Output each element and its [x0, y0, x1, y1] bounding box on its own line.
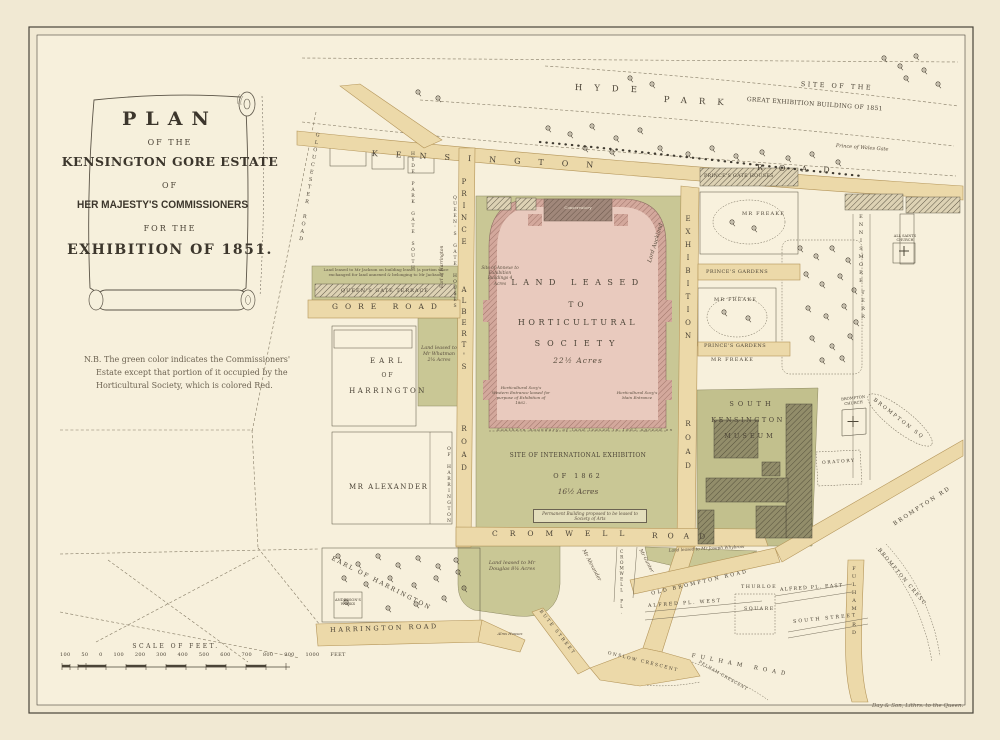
road-label-ennismore-terr: TERR. [860, 290, 865, 330]
road-label-exhibition-road: ROAD [684, 420, 691, 476]
label-of-harrington: OF HARRINGTON [446, 447, 451, 525]
alms-houses-label: Alms Houses [497, 632, 523, 637]
horticultural-label-4: SOCIETY [535, 340, 622, 348]
international-exhibition-acreage: 16½ Acres [558, 488, 599, 496]
road-label-cromwell: CROMWELL [492, 530, 636, 538]
horticultural-label-3: HORTICULTURAL [518, 319, 638, 327]
museum-label-1: SOUTH [729, 401, 774, 408]
mr-alexander-block-label: MR ALEXANDER [349, 484, 428, 491]
note-line-3: Horticultural Society, which is colored … [96, 382, 273, 390]
andersons-works-label: ANDERSON'S WORKS [334, 598, 362, 607]
note-line-2: Estate except that portion of it occupie… [96, 369, 288, 377]
queens-gate-terrace-label: QUEEN'S GATE TERRACE [341, 289, 429, 294]
annexe-site-label: Site of Annexe to Exhibition Buildings 4… [481, 266, 519, 287]
cartouche-commissioners: HER MAJESTY'S COMMISSIONERS [77, 200, 248, 211]
princes-gardens-label-1: PRINCE'S GARDENS [706, 270, 768, 275]
scale-title: SCALE OF FEET. [132, 644, 219, 650]
permanent-building-label: Permanent Building proposed to be leased… [533, 509, 647, 523]
cartouche-title: PLAN [122, 110, 218, 129]
earl-block-label-3: HARRINGTON [349, 388, 427, 395]
lithographer-imprint: Day & Son, Lithrs. to the Queen. [872, 704, 963, 710]
thurloe-square-label-1: THURLOE [741, 586, 777, 591]
earl-block-label-2: OF [381, 373, 394, 379]
mr-freake-label-3: MR FREAKE [711, 358, 754, 363]
conservatory-label: Conservatory [564, 206, 591, 210]
road-label-prince-alberts-road: ROAD [460, 425, 467, 477]
hyde-park-label-hyde: HYDE [575, 84, 649, 95]
cartouche-for-the: FOR THE [144, 225, 197, 233]
road-label-gore: GORE ROAD [332, 303, 444, 311]
road-label-fulham-rd: FULHAM RD [851, 566, 856, 638]
road-label-ennismore: ENNISMORE [858, 214, 863, 286]
mr-freake-label-1: MR FREAKE [742, 212, 785, 217]
cartouche-of: OF [162, 182, 178, 190]
southern-boundary-label: Southern boundary of land leased in 1862… [497, 428, 674, 432]
main-entrance-label: Horticultural Socy's Main Entrance [611, 391, 663, 401]
road-label-cromwell-road: ROAD [652, 532, 715, 541]
international-exhibition-label-1: SITE OF INTERNATIONAL EXHIBITION [510, 453, 647, 459]
mr-freake-label-2: MR FREAKE [714, 298, 757, 303]
road-label-cromwell-pl: CROMWELL PL. [619, 549, 623, 615]
road-label-alberts: ALBERT'S [460, 286, 467, 374]
all-saints-church-label: ALL SAINTS CHURCH [890, 234, 920, 243]
note-line-1: N.B. The green color indicates the Commi… [84, 356, 290, 364]
douglas-parcel-label: Land leased to Mr Douglas 8¼ Acres [478, 560, 546, 572]
road-label-hyde-park-gate-south: HYDE PARK GATE SOUTH [410, 152, 415, 272]
earl-block-label-1: EARL [370, 358, 406, 365]
scale-tick-numbers: 100 50 0 100 200 300 400 500 600 700 800… [60, 653, 346, 658]
cartouche-estate: KENSINGTON GORE ESTATE [62, 156, 279, 169]
road-label-exhibition: EXHIBITION [684, 215, 691, 345]
horticultural-label-2: TO [568, 301, 587, 309]
western-entrance-label: Horticultural Socy's Western Entrance le… [492, 386, 550, 406]
road-label-prince: PRINCE [460, 178, 467, 250]
queens-gate-terrace-note: Land leased to Mr Jackson on building le… [315, 268, 457, 278]
horticultural-acreage: 22½ Acres [553, 357, 603, 365]
museum-label-2: KENSINGTON [711, 417, 785, 424]
museum-label-3: MUSEUM [724, 433, 775, 440]
cartouche-exhibition: EXHIBITION OF 1851. [67, 243, 273, 257]
whatman-parcel-label: Land leased to Mr Whatman 2¼ Acres [419, 346, 459, 364]
princes-gardens-label-2: PRINCE'S GARDENS [704, 344, 766, 349]
cartouche-of-the: OF THE [148, 139, 193, 147]
road-label-queens-gate-houses: QUEEN'S GATE HOUSES [452, 196, 457, 310]
princes-gate-houses-label: PRINCE'S GATE HOUSES [704, 175, 774, 180]
international-exhibition-label-2: OF 1862 [553, 473, 602, 480]
thurloe-square-label-2: SQUARE [744, 608, 775, 613]
horticultural-label-1: LAND LEASED [511, 279, 644, 287]
map-sheet: PLAN OF THE KENSINGTON GORE ESTATE OF HE… [0, 0, 1000, 740]
